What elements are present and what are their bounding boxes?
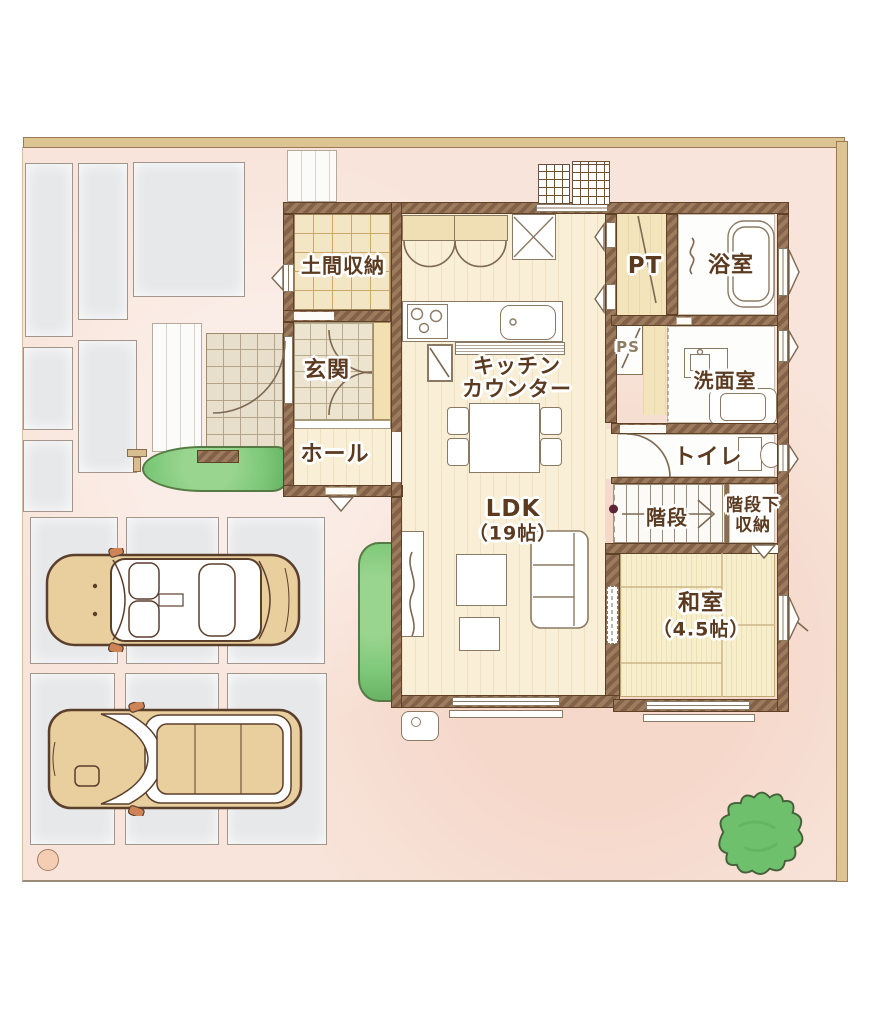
toilet-door-opening xyxy=(620,425,666,433)
wall xyxy=(611,477,787,484)
wall xyxy=(611,315,787,326)
window xyxy=(778,595,788,641)
room-label-washroom: 洗面室 xyxy=(694,365,757,394)
hall-ldk-opening xyxy=(392,432,401,482)
room-label-kitchen-line2: カウンター xyxy=(462,373,572,403)
coffee-table xyxy=(456,554,507,606)
side-table xyxy=(459,617,500,651)
door-opening xyxy=(325,487,357,495)
room-label-ldk-line2: （19帖） xyxy=(469,519,557,546)
paving-slab xyxy=(25,163,73,337)
window-sill xyxy=(643,714,755,722)
wall xyxy=(391,497,402,708)
pantry-cabinet-divider xyxy=(454,215,455,241)
window xyxy=(283,264,294,292)
dining-table xyxy=(469,403,540,473)
paving-slab xyxy=(133,162,245,297)
door-opening xyxy=(606,222,616,248)
entrance-door xyxy=(284,336,293,404)
dining-chair xyxy=(447,407,469,435)
window xyxy=(536,204,608,212)
shoe-cabinet xyxy=(373,322,391,420)
stove xyxy=(407,304,448,339)
room-label-japanese-room-line1: 和室 xyxy=(678,585,724,617)
door-opening xyxy=(752,545,778,553)
room-label-hall: ホール xyxy=(300,436,369,468)
water-tap-marker xyxy=(127,449,147,457)
room-label-bathroom: 浴室 xyxy=(708,247,754,279)
tv-board xyxy=(400,531,424,637)
tree xyxy=(706,786,810,882)
fence-top xyxy=(23,137,845,148)
approach-slats xyxy=(152,323,202,452)
dining-chair xyxy=(447,438,469,466)
fence-right xyxy=(836,141,848,882)
entrance-step xyxy=(294,420,391,429)
room-label-pipe-space: PS xyxy=(616,338,640,356)
window-sill xyxy=(449,710,563,718)
room-label-doma-storage: 土間収納 xyxy=(301,250,385,279)
refrigerator xyxy=(512,214,556,260)
sliding-door xyxy=(607,586,618,644)
room-label-stairs: 階段 xyxy=(646,502,688,531)
room-label-under-stairs-line2: 収納 xyxy=(735,511,771,536)
paving-slab xyxy=(78,163,128,320)
car-sedan xyxy=(43,548,303,652)
window xyxy=(778,330,788,362)
window xyxy=(778,248,788,296)
manhole xyxy=(37,849,59,871)
car-minivan xyxy=(45,702,305,816)
water-tap-marker xyxy=(133,457,141,472)
entrance-porch-tiles xyxy=(206,333,283,452)
garden-sink-pan xyxy=(401,711,439,741)
room-label-entrance: 玄関 xyxy=(304,352,350,384)
window xyxy=(778,444,788,472)
paving-slab xyxy=(23,440,73,512)
door-opening xyxy=(606,284,616,310)
porch-step xyxy=(197,450,239,463)
washing-machine-drum xyxy=(720,393,766,421)
kitchen-cabinet-end xyxy=(427,344,453,382)
floor-plan: 土間収納 玄関 ホール キッチン カウンター PT 浴室 PS 洗面室 トイレ … xyxy=(0,0,871,1024)
room-label-pantry: PT xyxy=(628,253,663,279)
paving-slab xyxy=(23,347,73,430)
window-grille xyxy=(572,161,610,205)
bathroom-door xyxy=(676,317,692,325)
washroom-corridor xyxy=(643,326,667,415)
room-label-toilet: トイレ xyxy=(673,439,742,471)
garden-sink-drain xyxy=(411,717,421,727)
deck-slats xyxy=(287,150,337,202)
window xyxy=(452,697,560,706)
dining-chair xyxy=(540,438,562,466)
window xyxy=(646,701,750,710)
dining-chair xyxy=(540,407,562,435)
room-label-japanese-room-line2: （4.5帖） xyxy=(653,615,750,642)
kitchen-pantry-cabinet xyxy=(402,215,508,241)
wall xyxy=(666,214,678,315)
window-grille xyxy=(538,164,570,204)
kitchen-sink xyxy=(500,305,556,340)
door-opening xyxy=(294,312,334,320)
